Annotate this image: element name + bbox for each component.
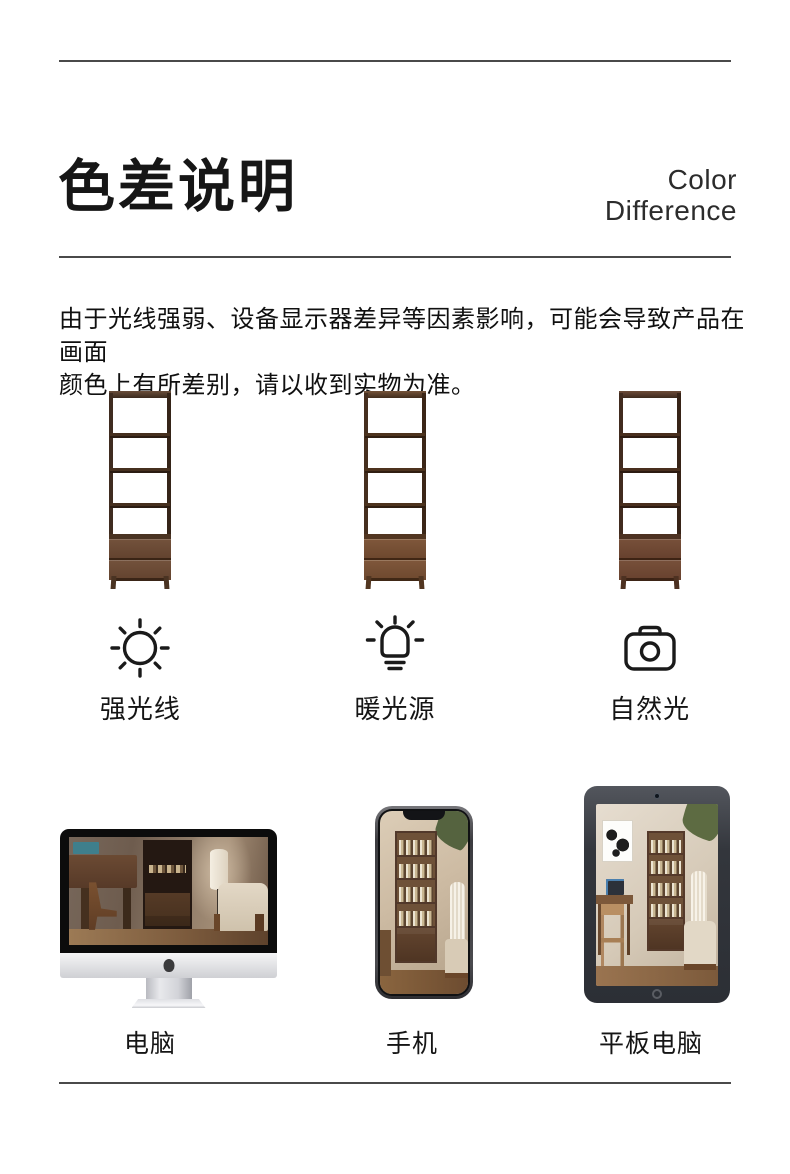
shelf-drawer — [364, 539, 426, 560]
scene-chair — [89, 882, 117, 930]
scene-bookshelf — [647, 831, 685, 951]
shelf-leg — [673, 576, 679, 589]
scene-wall-art — [602, 820, 633, 862]
computer-stand-neck — [146, 978, 192, 1000]
shelf-board — [620, 468, 680, 473]
apple-logo-icon — [163, 959, 174, 972]
computer-stand-foot — [132, 999, 206, 1008]
scene-desk-leg — [123, 888, 131, 929]
scene-chair — [601, 904, 624, 966]
tablet-camera — [655, 794, 659, 798]
scene-shelf-row — [649, 876, 683, 895]
shelf-drawer — [364, 560, 426, 581]
page-subtitle-en: Color Difference — [605, 164, 737, 226]
variant-strong-light-cell — [13, 389, 268, 590]
shelf-rail — [371, 578, 419, 581]
shelf-rail — [116, 578, 164, 581]
lighting-item-warm: 暖光源 — [268, 615, 523, 726]
computer-mockup — [60, 829, 277, 1008]
lighting-item-natural: 自然光 — [522, 615, 777, 726]
bookshelf-image-strong-light — [109, 389, 171, 590]
variant-warm-light-cell — [268, 389, 523, 590]
scene-floor — [69, 929, 268, 945]
shelf-drawer — [109, 539, 171, 560]
computer-screen-photo — [69, 837, 268, 945]
lighting-item-strong: 强光线 — [13, 615, 268, 726]
shelf-leg — [111, 576, 117, 589]
scene-shelf-drawers — [649, 919, 683, 949]
shelf-left-post — [619, 393, 623, 538]
scene-laptop — [606, 879, 624, 895]
scene-shelf-row — [649, 898, 683, 917]
shelf-drawers — [619, 534, 681, 580]
scene-shelf-row — [397, 833, 435, 855]
scene-stool — [380, 930, 391, 976]
bookshelf-image-natural-light — [619, 389, 681, 590]
shelf-right-post — [422, 393, 426, 538]
shelf-drawers — [364, 534, 426, 580]
shelf-drawer — [619, 560, 681, 581]
shelf-board — [110, 468, 170, 473]
shelf-board — [365, 468, 425, 473]
scene-desk-accessory — [73, 842, 99, 854]
bottom-divider — [59, 1082, 731, 1084]
top-divider — [59, 60, 731, 62]
shelf-top-board — [109, 391, 171, 398]
color-difference-notice: 由于光线强弱、设备显示器差异等因素影响，可能会导致产品在画面 颜色上有所差别，请… — [59, 303, 749, 402]
subtitle-line-1: Color — [605, 164, 737, 195]
scene-shelf-drawers — [397, 928, 435, 961]
tablet-screen-photo — [596, 804, 718, 986]
notice-line-1: 由于光线强弱、设备显示器差异等因素影响，可能会导致产品在画面 — [59, 303, 749, 369]
device-label-phone: 手机 — [386, 1024, 438, 1060]
scene-shelf-items — [149, 865, 187, 873]
shelf-board — [620, 503, 680, 508]
subtitle-line-2: Difference — [605, 195, 737, 226]
device-label-computer: 电脑 — [124, 1024, 176, 1060]
scene-books — [149, 846, 187, 856]
scene-armchair — [684, 921, 716, 970]
device-label-tablet: 平板电脑 — [599, 1024, 703, 1060]
lighting-row: 强光线 暖光源 — [13, 615, 777, 726]
tablet-screen — [596, 804, 718, 986]
phone-mockup — [375, 806, 473, 999]
computer-chin — [60, 953, 277, 978]
lighting-label-strong: 强光线 — [100, 689, 181, 726]
shelf-top-board — [364, 391, 426, 398]
lighting-label-warm: 暖光源 — [355, 689, 436, 726]
bulb-icon — [362, 615, 428, 681]
scene-shelf-drawers — [145, 893, 191, 925]
shelf-drawer — [619, 539, 681, 560]
sun-icon — [107, 615, 173, 681]
color-difference-section: 色差说明 Color Difference 由于光线强弱、设备显示器差异等因素影… — [0, 0, 790, 1174]
product-variants-row — [13, 389, 777, 590]
scene-shelf-row — [397, 857, 435, 879]
shelf-board — [365, 503, 425, 508]
phone-screen-photo — [380, 811, 468, 994]
tablet-mockup — [584, 786, 730, 1003]
scene-bookshelf — [395, 831, 437, 963]
scene-desk — [596, 895, 633, 904]
shelf-leg — [419, 576, 425, 589]
shelf-board — [620, 433, 680, 438]
lighting-label-natural: 自然光 — [609, 689, 690, 726]
shelf-drawers — [109, 534, 171, 580]
shelf-board — [110, 433, 170, 438]
shelf-left-post — [364, 393, 368, 538]
shelf-board — [110, 503, 170, 508]
scene-desk — [69, 855, 137, 887]
shelf-rail — [626, 578, 674, 581]
phone-notch — [403, 811, 445, 820]
camera-icon — [617, 615, 683, 681]
phone-screen — [378, 809, 470, 996]
shelf-right-post — [677, 393, 681, 538]
variant-natural-light-cell — [522, 389, 777, 590]
shelf-left-post — [109, 393, 113, 538]
scene-armchair-frame — [214, 914, 264, 931]
shelf-leg — [366, 576, 372, 589]
shelf-leg — [620, 576, 626, 589]
scene-chair — [445, 939, 468, 977]
bookshelf-image-warm-light — [364, 389, 426, 590]
scene-desk-leg — [81, 888, 89, 929]
scene-shelf-row — [649, 833, 683, 852]
scene-shelf-row — [397, 880, 435, 902]
scene-shelf-row — [649, 855, 683, 874]
tablet-home-button — [652, 989, 662, 999]
computer-screen — [60, 829, 277, 953]
title-divider — [59, 256, 731, 258]
shelf-right-post — [167, 393, 171, 538]
shelf-drawer — [109, 560, 171, 581]
page-title: 色差说明 — [58, 148, 298, 228]
shelf-board — [365, 433, 425, 438]
scene-shelf-row — [397, 904, 435, 926]
shelf-top-board — [619, 391, 681, 398]
